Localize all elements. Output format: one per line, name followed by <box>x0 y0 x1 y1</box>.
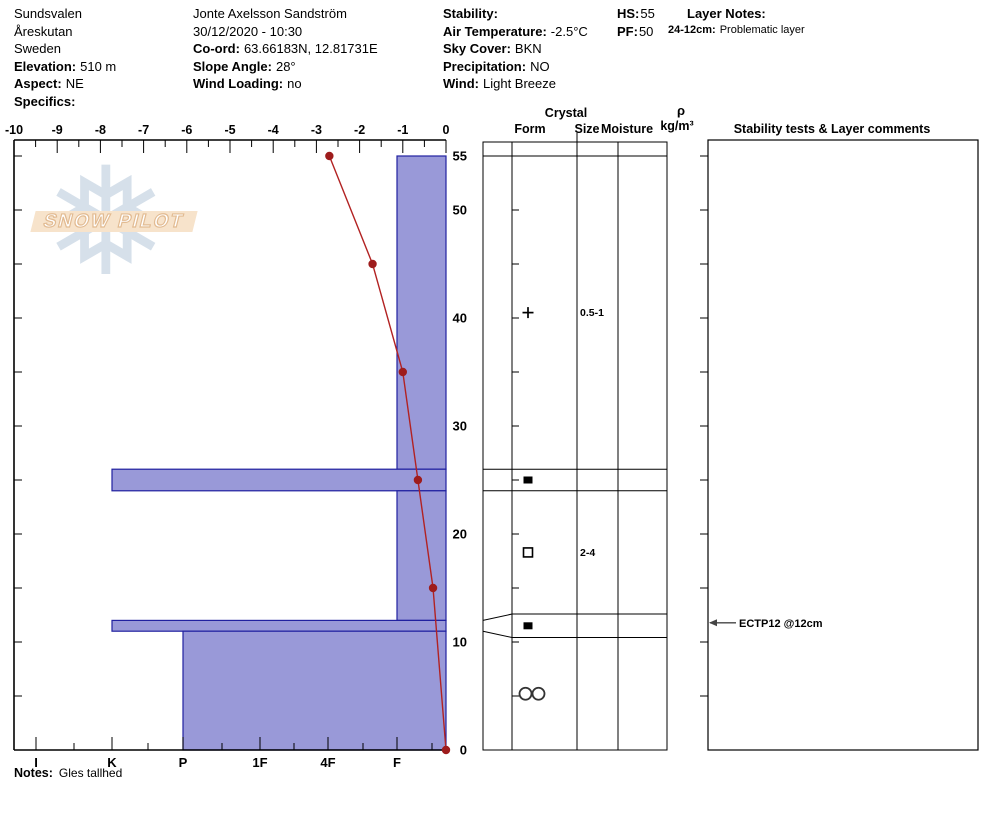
field-label: Wind Loading: <box>193 76 283 91</box>
observer-info-column: Jonte Axelsson Sandström30/12/2020 - 10:… <box>193 5 378 93</box>
grain-size-value: 0.5-1 <box>580 307 604 319</box>
header-line: Wind Loading:no <box>193 75 378 93</box>
field-label: Co-ord: <box>193 41 240 56</box>
temp-axis-label: -1 <box>397 123 408 137</box>
layer-row-wedge-line <box>483 614 512 620</box>
header-line: Sundsvalen <box>14 5 116 23</box>
field-label: Aspect: <box>14 76 62 91</box>
field-value: 28° <box>276 59 296 74</box>
header-line: Slope Angle:28° <box>193 58 378 76</box>
header-line: PF:50 <box>617 23 655 41</box>
temp-axis-label: -10 <box>5 123 23 137</box>
field-value: no <box>287 76 301 91</box>
temperature-point <box>325 152 333 160</box>
field-value: NE <box>66 76 84 91</box>
height-axis-label: 50 <box>453 203 467 218</box>
grain-size-value: 2-4 <box>580 547 595 559</box>
field-value: 55 <box>640 6 654 21</box>
hardness-bar <box>397 156 446 469</box>
field-value: 63.66183N, 12.81731E <box>244 41 378 56</box>
field-label: Precipitation: <box>443 59 526 74</box>
field-value: Light Breeze <box>483 76 556 91</box>
field-label: PF: <box>617 24 638 39</box>
field-value: BKN <box>515 41 542 56</box>
field-label: HS: <box>617 6 639 21</box>
site-info-column: SundsvalenÅreskutanSwedenElevation:510 m… <box>14 5 116 110</box>
temp-axis-label: -2 <box>354 123 365 137</box>
crystal-header: Crystal <box>545 106 587 120</box>
header-line: Stability: <box>443 5 588 23</box>
height-axis-label: 0 <box>460 743 467 758</box>
hardness-bar <box>112 620 446 631</box>
field-label: Slope Angle: <box>193 59 272 74</box>
pit-notes: Notes:Gles tallhed <box>14 766 122 780</box>
conditions-info-column: Stability:Air Temperature:-2.5°CSky Cove… <box>443 5 588 93</box>
header-line: Sky Cover:BKN <box>443 40 588 58</box>
header-line: Jonte Axelsson Sandström <box>193 5 378 23</box>
layer-row-wedge-line <box>483 631 512 637</box>
form-header: Form <box>514 122 545 136</box>
header-line: Åreskutan <box>14 23 116 41</box>
header-line: Precipitation:NO <box>443 58 588 76</box>
grain-form-symbol-facets <box>524 548 533 557</box>
height-axis-label: 10 <box>453 635 467 650</box>
temp-axis-label: -5 <box>224 123 235 137</box>
header-line: Specifics: <box>14 93 116 111</box>
layer-notes-column: Layer Notes:24-12cm:Problematic layer <box>668 5 805 37</box>
stability-comments-box <box>708 140 978 750</box>
grain-form-symbol-crust <box>524 477 533 484</box>
temp-axis-label: -8 <box>95 123 106 137</box>
stability-comments-header: Stability tests & Layer comments <box>734 122 931 136</box>
field-label: Air Temperature: <box>443 24 547 39</box>
header-line: 30/12/2020 - 10:30 <box>193 23 378 41</box>
temperature-point <box>414 476 422 484</box>
notes-value: Gles tallhed <box>59 766 122 780</box>
header-line: Aspect:NE <box>14 75 116 93</box>
temperature-point <box>399 368 407 376</box>
header-line: Air Temperature:-2.5°C <box>443 23 588 41</box>
height-axis-label: 30 <box>453 419 467 434</box>
temp-axis-label: -9 <box>52 123 63 137</box>
hardness-axis-label: F <box>393 755 401 770</box>
snowpilot-logo-text: SNOW PILOT <box>41 211 187 233</box>
field-label: 24-12cm: <box>668 24 716 36</box>
field-label: Layer Notes: <box>687 6 766 21</box>
hardness-bar <box>397 491 446 621</box>
field-value: 510 m <box>80 59 116 74</box>
field-label: Specifics: <box>14 94 75 109</box>
temperature-point <box>442 746 450 754</box>
grain-form-symbol-melt-forms <box>533 688 545 700</box>
ect-result-text: ECTP12 @12cm <box>739 618 823 630</box>
moisture-header: Moisture <box>601 122 653 136</box>
height-axis-label: 55 <box>453 149 467 164</box>
layer-table-box <box>483 142 667 750</box>
temperature-point <box>429 584 437 592</box>
hardness-axis-label: 1F <box>252 755 267 770</box>
temp-axis-label: -7 <box>138 123 149 137</box>
hs-pf-column: HS:55PF:50 <box>617 5 655 40</box>
hardness-bar <box>183 631 446 750</box>
ect-arrow-head <box>709 619 717 626</box>
field-value: 30/12/2020 - 10:30 <box>193 24 302 39</box>
temperature-point <box>368 260 376 268</box>
header-line: Co-ord:63.66183N, 12.81731E <box>193 40 378 58</box>
temp-axis-label: -6 <box>181 123 192 137</box>
height-axis-label: 20 <box>453 527 467 542</box>
grain-form-symbol-crust <box>524 622 533 629</box>
field-value: NO <box>530 59 550 74</box>
field-value: Problematic layer <box>720 24 805 36</box>
density-header: ρ <box>677 103 685 118</box>
header-line: Elevation:510 m <box>14 58 116 76</box>
field-value: -2.5°C <box>551 24 588 39</box>
temp-axis-label: -3 <box>311 123 322 137</box>
field-label: Stability: <box>443 6 498 21</box>
header-line: HS:55 <box>617 5 655 23</box>
field-value: Jonte Axelsson Sandström <box>193 6 347 21</box>
snowpilot-logo: SNOW PILOT <box>30 211 197 232</box>
header-line: 24-12cm:Problematic layer <box>668 23 805 37</box>
temp-axis-label: 0 <box>443 123 450 137</box>
hardness-axis-label: P <box>179 755 188 770</box>
field-value: Sundsvalen <box>14 6 82 21</box>
header-line: Layer Notes: <box>668 5 805 23</box>
field-label: Sky Cover: <box>443 41 511 56</box>
header-line: Wind:Light Breeze <box>443 75 588 93</box>
field-value: 50 <box>639 24 653 39</box>
snowpilot-profile-page: SundsvalenÅreskutanSwedenElevation:510 m… <box>0 0 994 840</box>
temp-axis-label: -4 <box>268 123 279 137</box>
field-label: Wind: <box>443 76 479 91</box>
hardness-bar <box>112 469 446 491</box>
height-axis-label: 40 <box>453 311 467 326</box>
size-header: Size <box>574 122 599 136</box>
field-value: Åreskutan <box>14 24 73 39</box>
field-value: Sweden <box>14 41 61 56</box>
temperature-line <box>329 156 446 750</box>
field-label: Elevation: <box>14 59 76 74</box>
density-unit-header: kg/m³ <box>660 119 693 133</box>
grain-form-symbol-melt-forms <box>520 688 532 700</box>
notes-label: Notes: <box>14 766 53 780</box>
header-line: Sweden <box>14 40 116 58</box>
hardness-axis-label: 4F <box>320 755 335 770</box>
